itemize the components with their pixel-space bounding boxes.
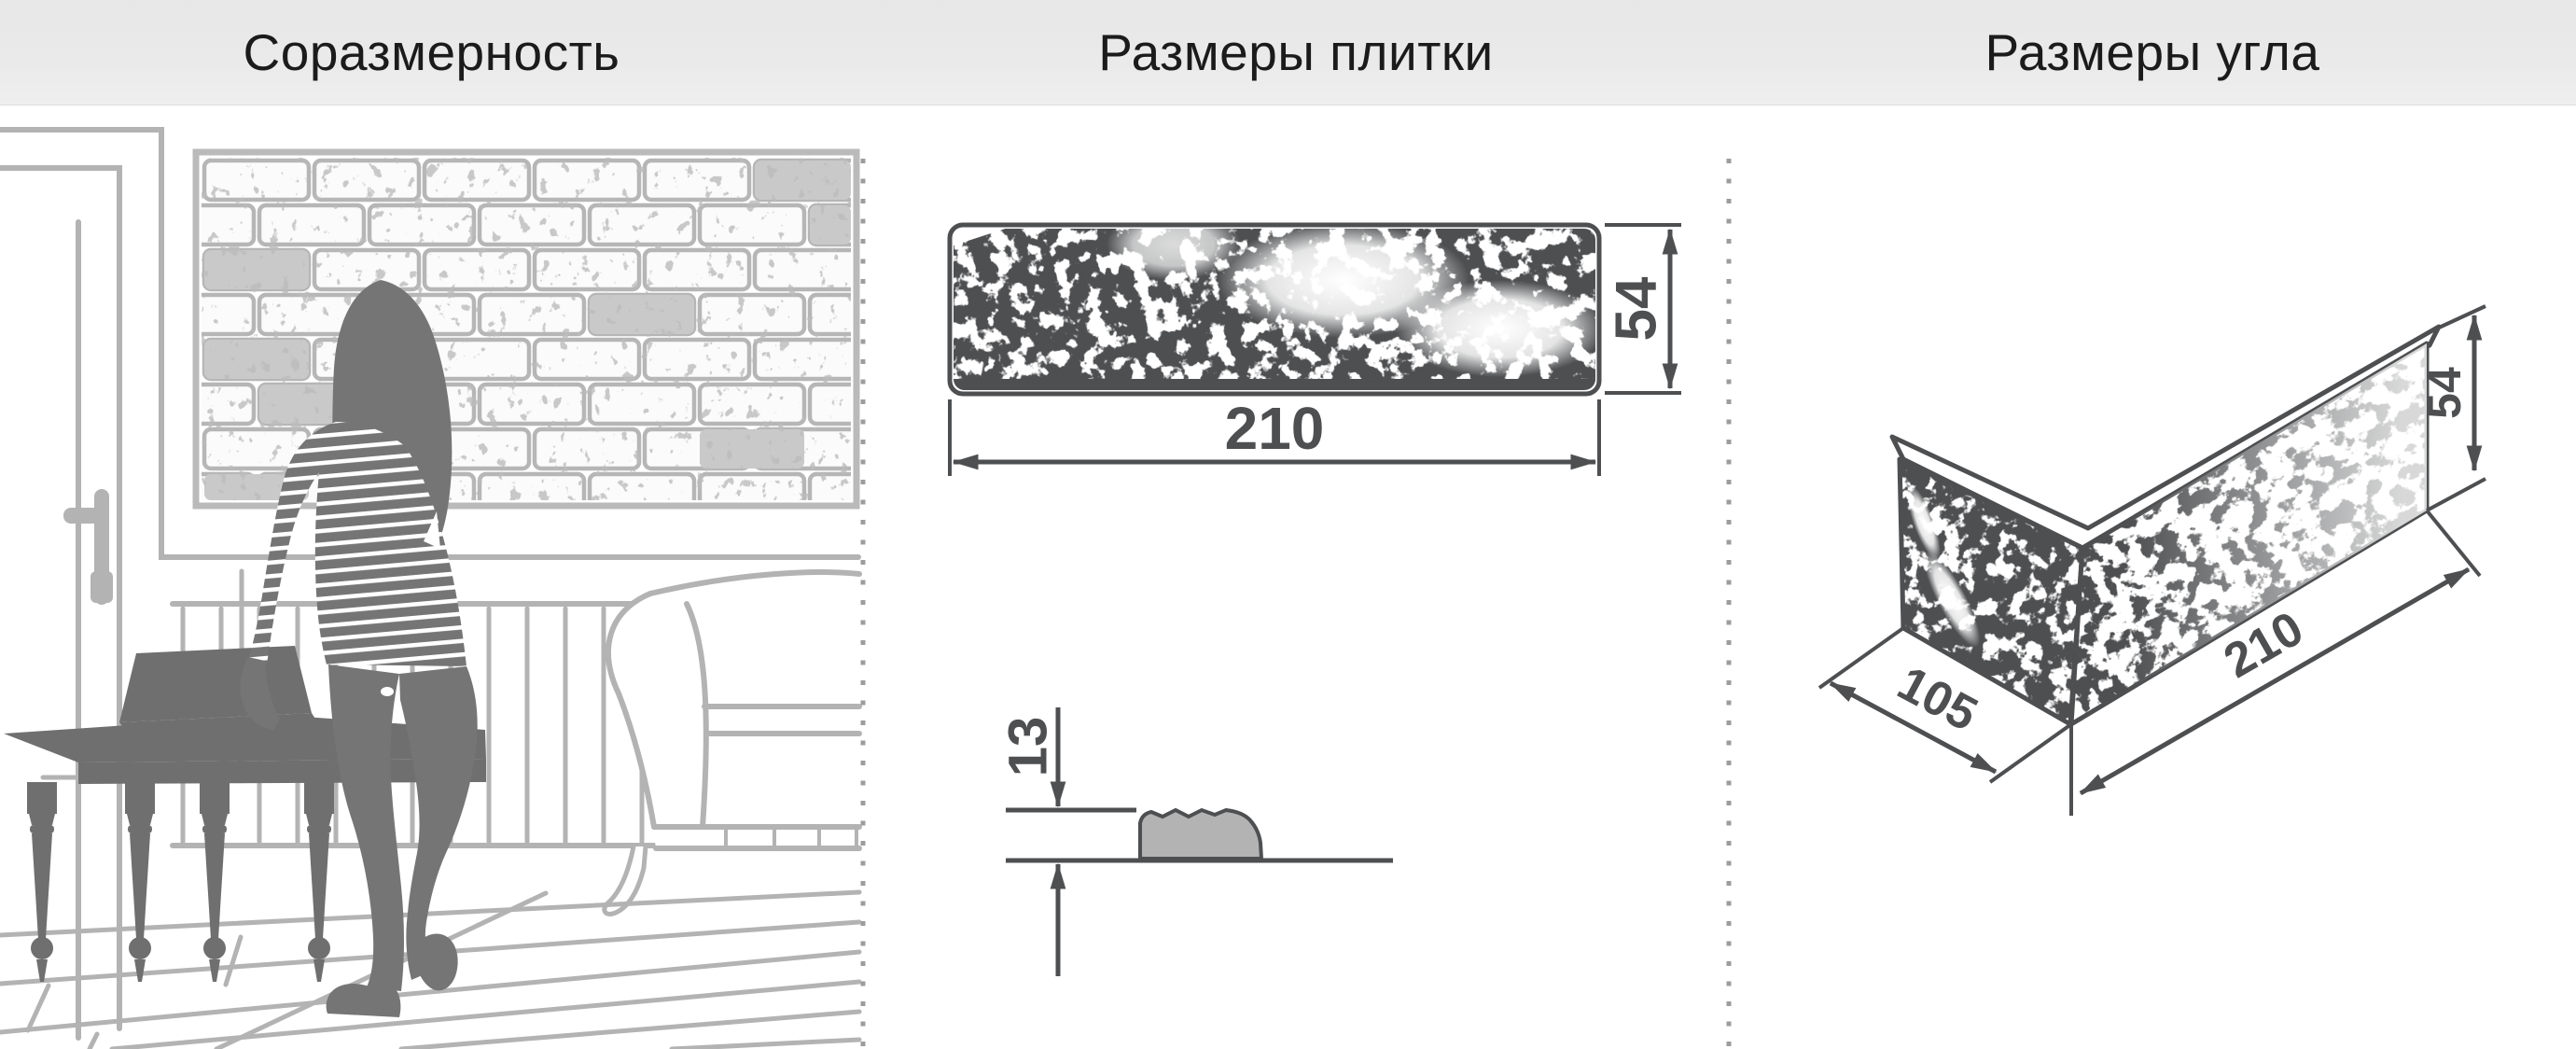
tile-side-view: 13 <box>997 707 1393 976</box>
sofa <box>605 572 859 914</box>
door-handle <box>63 489 113 605</box>
laptop-screen <box>119 646 312 722</box>
tile-thickness-label: 13 <box>997 717 1058 777</box>
corner-dimension-drawing: 54 210 105 <box>1816 285 2541 816</box>
scene-illustrations: 210 54 13 <box>0 0 2576 1049</box>
room-illustration <box>0 130 859 1049</box>
laptop <box>119 646 328 748</box>
screenshot-stage: Соразмерность Размеры плитки Размеры угл… <box>0 0 2576 1049</box>
jeans-button <box>381 687 394 696</box>
brick-wall <box>196 152 856 506</box>
tile-height-label: 54 <box>1604 276 1668 341</box>
tile-dimension-drawing: 210 54 13 <box>776 8 1785 976</box>
woman-jeans-front-leg <box>328 664 404 991</box>
door <box>0 168 119 1038</box>
corner-height-label: 54 <box>2418 367 2471 419</box>
tile-width-label: 210 <box>1225 395 1325 462</box>
tile-side-profile <box>1140 810 1261 859</box>
woman-shoe-toe-down <box>414 933 458 990</box>
woman-shoe-flat <box>327 984 401 1017</box>
